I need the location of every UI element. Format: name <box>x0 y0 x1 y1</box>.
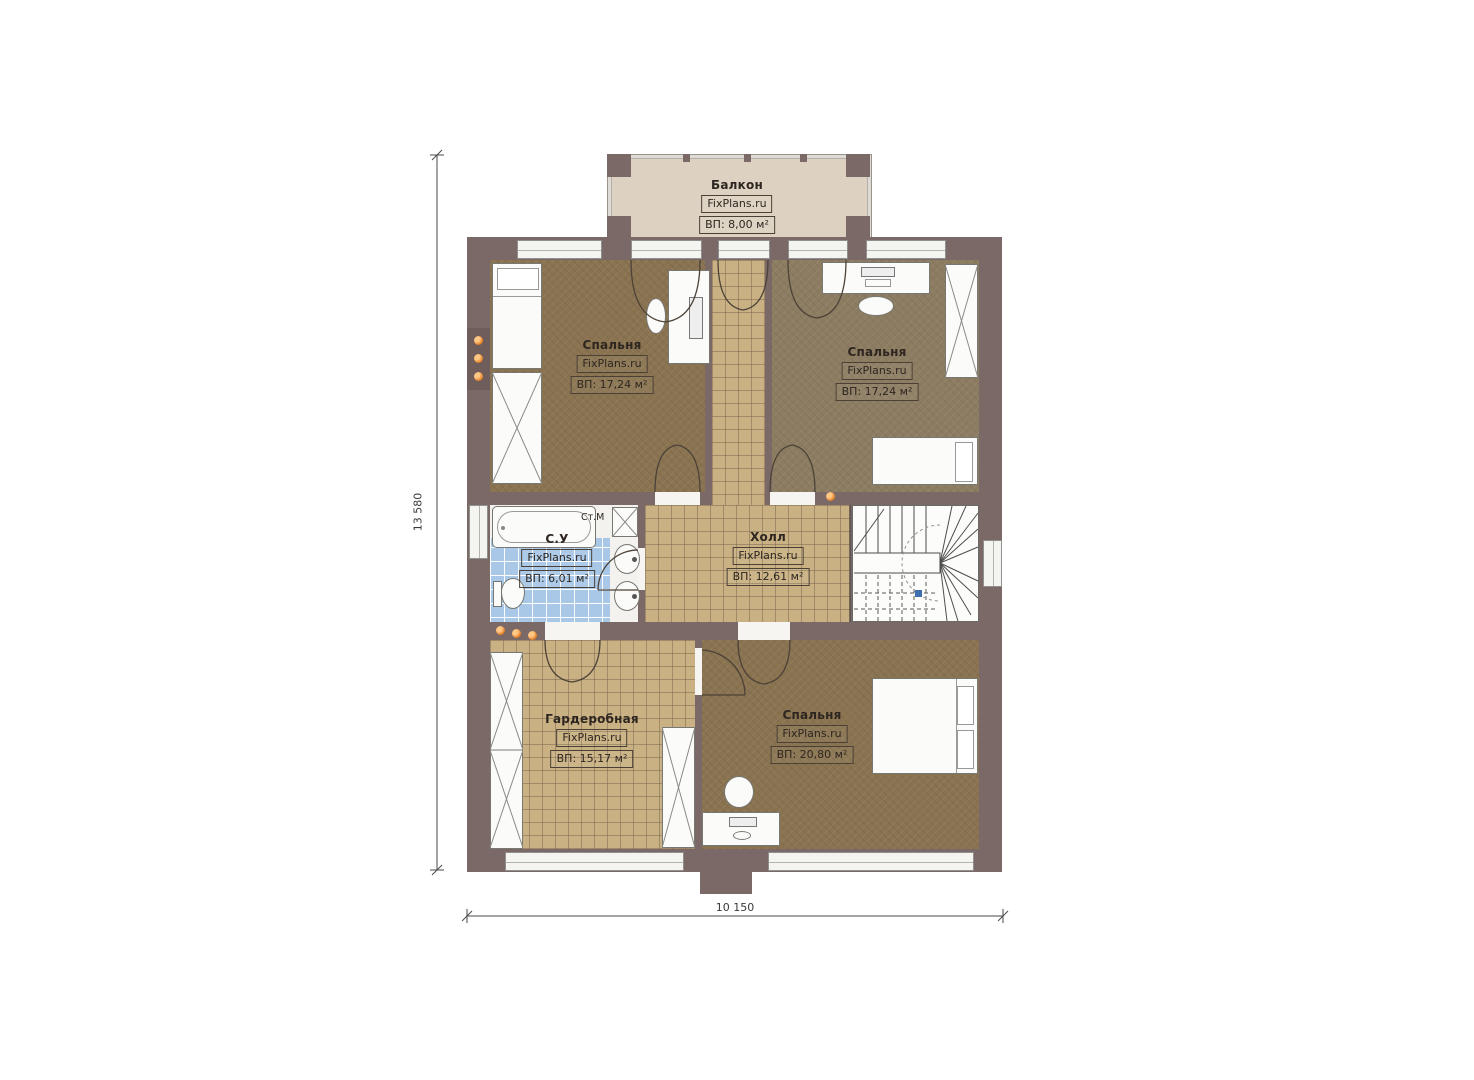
room-area: ВП: 20,80 м² <box>771 746 854 764</box>
blanket-line <box>493 296 541 297</box>
bed <box>492 263 542 369</box>
dimension-width: 10 150 <box>716 901 755 914</box>
desk <box>668 270 710 364</box>
brand-label: FixPlans.ru <box>521 549 592 567</box>
chair <box>724 776 754 808</box>
office-chair <box>858 296 894 316</box>
wardrobe-cabinet <box>492 372 542 484</box>
desk <box>702 812 780 846</box>
vent-dot <box>512 629 521 638</box>
brand-label: FixPlans.ru <box>732 547 803 565</box>
room-label-bedroom-b: Спальня FixPlans.ru ВП: 20,80 м² <box>771 708 854 764</box>
brand-label: FixPlans.ru <box>556 729 627 747</box>
stair-marker <box>915 590 922 597</box>
washing-machine-label: Ст.М <box>581 512 604 523</box>
room-area: ВП: 8,00 м² <box>699 216 775 234</box>
window <box>469 505 488 559</box>
dimension-height: 13 580 <box>412 493 425 532</box>
vent-dot <box>826 492 835 501</box>
brand-label: FixPlans.ru <box>576 355 647 373</box>
floor-plan: Балкон FixPlans.ru ВП: 8,00 м² Спальня F… <box>0 0 1474 1080</box>
room-name: Гардеробная <box>545 712 639 726</box>
computer-monitor <box>689 297 703 339</box>
washing-machine <box>612 507 638 537</box>
pillow <box>497 268 539 290</box>
vent-dot <box>528 631 537 640</box>
balcony-door-glazing <box>718 240 770 259</box>
wardrobe-cabinet <box>945 264 978 378</box>
computer-monitor <box>861 267 895 277</box>
room-area: ВП: 6,01 м² <box>519 570 595 588</box>
mouse <box>733 831 751 840</box>
keyboard <box>729 817 757 827</box>
door-opening <box>655 492 700 505</box>
balcony-post <box>607 154 631 177</box>
faucet <box>632 557 637 562</box>
window <box>505 852 684 871</box>
drain <box>501 526 505 530</box>
corridor-floor <box>712 260 765 505</box>
room-label-balcony: Балкон FixPlans.ru ВП: 8,00 м² <box>699 178 775 234</box>
brand-label: FixPlans.ru <box>701 195 772 213</box>
door-opening <box>695 648 702 695</box>
balcony-rail-tick <box>800 154 807 162</box>
brand-label: FixPlans.ru <box>841 362 912 380</box>
vent-dot <box>474 372 483 381</box>
balcony-rail-tick <box>683 154 690 162</box>
balcony-door-glazing <box>631 240 702 259</box>
room-label-bathroom: С.У FixPlans.ru ВП: 6,01 м² <box>519 532 595 588</box>
pillow <box>957 686 974 725</box>
room-name: С.У <box>545 532 568 546</box>
room-name: Спальня <box>783 708 842 722</box>
room-area: ВП: 17,24 м² <box>836 383 919 401</box>
vent-dot <box>496 626 505 635</box>
office-chair <box>646 298 666 334</box>
winder-staircase <box>852 505 979 622</box>
room-name: Спальня <box>848 345 907 359</box>
room-area: ВП: 15,17 м² <box>551 750 634 768</box>
door-opening <box>770 492 815 505</box>
room-label-bedroom-tl: Спальня FixPlans.ru ВП: 17,24 м² <box>571 338 654 394</box>
room-name: Спальня <box>583 338 642 352</box>
room-label-bedroom-tr: Спальня FixPlans.ru ВП: 17,24 м² <box>836 345 919 401</box>
pillow <box>957 730 974 769</box>
wardrobe-cabinet <box>662 727 695 848</box>
room-name: Балкон <box>711 178 763 192</box>
sink <box>614 544 640 574</box>
window <box>983 540 1002 587</box>
chimney-stub <box>700 872 752 894</box>
keyboard <box>865 279 891 287</box>
desk <box>822 262 930 294</box>
room-label-hall: Холл FixPlans.ru ВП: 12,61 м² <box>727 530 810 586</box>
faucet <box>632 594 637 599</box>
double-bed <box>872 678 978 774</box>
room-area: ВП: 12,61 м² <box>727 568 810 586</box>
room-label-wardrobe: Гардеробная FixPlans.ru ВП: 15,17 м² <box>545 712 639 768</box>
window <box>866 240 946 259</box>
vent-dot <box>474 354 483 363</box>
room-area: ВП: 17,24 м² <box>571 376 654 394</box>
door-opening <box>545 622 600 640</box>
balcony-door-glazing <box>788 240 848 259</box>
vent-dot <box>474 336 483 345</box>
room-name: Холл <box>750 530 786 544</box>
balcony-rail-tick <box>744 154 751 162</box>
door-opening <box>738 622 790 640</box>
bed <box>872 437 978 485</box>
balcony-post <box>846 154 870 177</box>
pillow <box>955 442 973 482</box>
window <box>768 852 974 871</box>
brand-label: FixPlans.ru <box>776 725 847 743</box>
window <box>517 240 602 259</box>
wardrobe-cabinet <box>490 652 523 849</box>
sink <box>614 581 640 611</box>
